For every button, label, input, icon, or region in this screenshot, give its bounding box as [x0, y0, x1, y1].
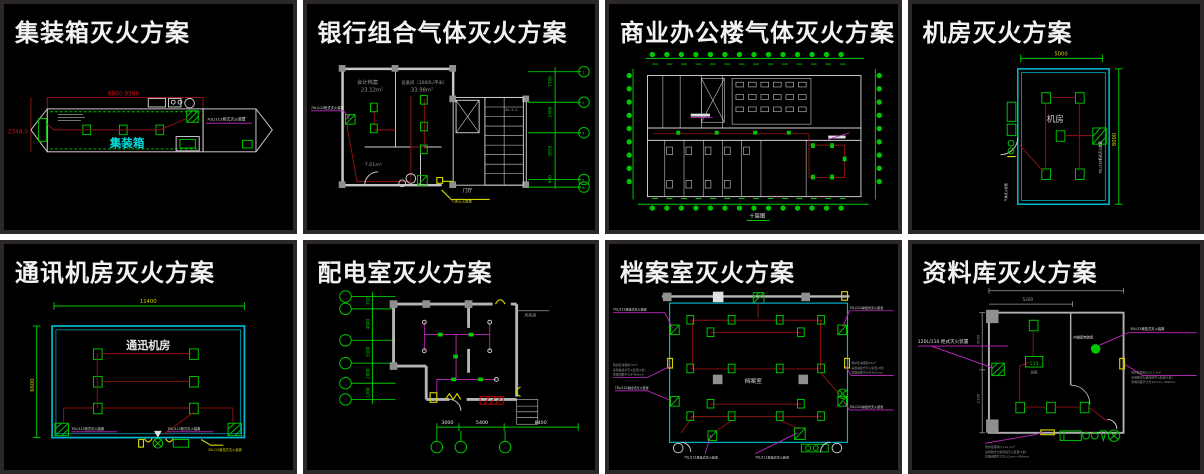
archive-note-6: 喷嘴间距不大于400mm — [851, 370, 882, 375]
power-dim-5: 2200 — [365, 387, 370, 398]
library-note-r3: 喷嘴间距尺寸为1/2mm~400mm — [1131, 379, 1175, 384]
panel-power[interactable]: 配电室灭火方案 310 4600 3100 2000 2200 — [303, 240, 600, 474]
panel-bank-title: 银行组合气体灭火方案 — [318, 13, 568, 48]
library-note-r2: 采用柜式七氟丙烷灭火装置(1套) — [1131, 374, 1172, 379]
nozzles — [676, 131, 846, 180]
power-bdim-3: 8400 — [534, 420, 546, 426]
label-highlights — [691, 114, 850, 140]
axis-dim-1: 7300 — [547, 76, 553, 87]
valve-sub-label: 阀组 — [1030, 370, 1037, 375]
valve-label: 115 — [1029, 361, 1038, 367]
cabinet-hatch — [991, 363, 1004, 375]
bank-device-label: 70L/112柜式灭火装置 — [310, 105, 344, 110]
dimension-lines — [1020, 55, 1122, 205]
panel-office-title: 商业办公楼气体灭火方案 — [620, 13, 895, 48]
dimension-lines — [33, 302, 245, 437]
power-dim-1: 310 — [365, 297, 370, 305]
fan-room-label: 风机房 — [524, 311, 536, 317]
archive-note-5: 采用悬挂式灭火装置(2套) — [851, 365, 884, 370]
axis-grid — [528, 66, 589, 192]
container-room-label: 集装箱 — [109, 136, 145, 150]
room3-area: 7.01m² — [364, 162, 381, 168]
archive-dev-label-1: 70L/112悬挂式灭火装置 — [613, 307, 647, 312]
library-device-right-label: 30L/13悬挂式灭火装置 — [1130, 326, 1165, 331]
panel-telecom-title: 通讯机房灭火方案 — [15, 253, 215, 288]
stair-label: BL-5-1 — [505, 107, 518, 112]
archive-note-2: 采用悬挂式灭火装置(2套) — [613, 367, 646, 372]
axis-id-2: 2 — [582, 100, 585, 105]
panel-machine-title: 机房灭火方案 — [923, 13, 1073, 48]
archive-note-3: 喷嘴间距不大于400mm — [613, 372, 644, 377]
telecom-dim-left: 6600 — [30, 378, 36, 391]
panel-archive-title: 档案室灭火方案 — [620, 253, 795, 288]
panel-bank[interactable]: 银行组合气体灭火方案 — [303, 0, 600, 234]
library-note-b2: 采用柜式七氟丙烷灭火装置(1套) — [985, 449, 1026, 454]
axis-dim-2: 2400 — [547, 106, 553, 117]
archive-dev-label-2: 70L/112悬挂式灭火装置 — [849, 305, 883, 310]
panel-archive[interactable]: 档案室灭火方案 — [605, 240, 902, 474]
magenta-piping — [422, 320, 498, 396]
red-piping — [681, 303, 840, 433]
archive-room-label: 档案室 — [745, 377, 763, 385]
container-dim-left: 2348.0 — [8, 130, 29, 136]
power-bdim-1: 3000 — [441, 420, 453, 426]
axis-dim-3: 3850 — [547, 145, 553, 156]
panel-telecom[interactable]: 通讯机房灭火方案 11400 6600 通迅机房 — [0, 240, 297, 474]
axis-id-3: 4 — [582, 131, 585, 136]
door-equipment — [1000, 102, 1017, 156]
panel-office[interactable]: 商业办公楼气体灭火方案 — [605, 0, 902, 234]
bottom-equipment — [1040, 419, 1119, 441]
cad-collage: 集装箱灭火方案 8860.9386 2348.0 — [0, 0, 1204, 474]
library-dim-top: 5200 — [1022, 297, 1033, 302]
red-piping — [1019, 331, 1107, 422]
library-device-left-label: 120L/110 柜式灭火装置 — [917, 338, 968, 345]
container-body — [31, 109, 272, 152]
library-note-b1: 防护区容积(V):12.1m³ — [985, 444, 1015, 449]
axis-id-1: 1 — [582, 70, 585, 75]
panel-container[interactable]: 集装箱灭火方案 8860.9386 2348.0 — [0, 0, 297, 234]
red-piping — [64, 354, 233, 435]
telecom-dim-top: 11400 — [140, 299, 157, 305]
room1-area: 23.12m² — [360, 88, 382, 94]
archive-dev-label-5: 70L/112悬挂式灭火装置 — [684, 455, 718, 460]
elevator — [456, 100, 479, 132]
note-leader — [201, 439, 223, 445]
device-right-leader — [1099, 333, 1196, 345]
power-dim-4: 2000 — [365, 368, 370, 379]
telecom-room-label: 通迅机房 — [126, 338, 170, 352]
panel-library-title: 资料库灭火方案 — [923, 253, 1098, 288]
room-walls — [1017, 69, 1108, 204]
power-dim-2: 4600 — [365, 319, 370, 330]
cabinet-hatch — [345, 115, 427, 186]
telecom-note: 30L/13悬挂式灭火装置 — [208, 447, 243, 452]
circle-label: 内部配电装置 — [1073, 334, 1093, 339]
room2-area: 33.98m² — [410, 88, 432, 94]
telecom-device-left: 70L/112柜式灭火装置 — [71, 426, 105, 431]
lobby-label: 门厅 — [462, 187, 472, 194]
door-arcs — [449, 300, 520, 411]
machine-room-label: 机房 — [1046, 113, 1063, 125]
bottom-dimensions — [431, 423, 578, 453]
library-dim-left-2: 2100 — [975, 393, 980, 403]
nozzles — [370, 96, 427, 154]
roof-equipment — [148, 98, 194, 108]
top-wall — [662, 292, 850, 303]
dimension-lines — [979, 288, 1123, 433]
power-bdim-2: 5400 — [475, 420, 487, 426]
panel-machine[interactable]: 机房灭火方案 5000 8000 — [908, 0, 1204, 234]
panel-container-title: 集装箱灭火方案 — [15, 13, 190, 48]
office-caption: 十层图 — [749, 212, 765, 220]
library-note-r1: 防护区容积(V):12.1m³ — [1131, 370, 1161, 375]
container-dim-top: 8860.9386 — [108, 92, 139, 98]
device-left-leader — [917, 346, 1007, 368]
axis-dim-4: 600 — [547, 175, 553, 183]
microtext-note — [58, 115, 85, 121]
columns — [389, 300, 472, 370]
suspended-extinguisher — [1090, 344, 1100, 354]
room2-name: 设备间（3000L/平米） — [401, 79, 447, 86]
room1-name: 会计档案 — [357, 78, 379, 86]
panel-library[interactable]: 资料库灭火方案 5200 3000 2100 120L/110 柜式灭火装置 — [908, 240, 1204, 474]
panel-power-title: 配电室灭火方案 — [318, 253, 493, 288]
archive-note-1: 防护区净容积72m³ — [613, 362, 638, 367]
axis-id-5: 6 — [582, 185, 585, 190]
telecom-device-right: 70L/112柜式灭火装置 — [167, 426, 201, 431]
walls — [393, 304, 549, 399]
archive-dev-label-4: 70L/112悬挂式灭火装置 — [849, 404, 883, 409]
archive-dev-label-3: 70L/112悬挂式灭火装置 — [615, 385, 649, 390]
agent-cabinet-hatch — [187, 111, 199, 122]
library-note-b3: 喷嘴间距尺寸为1/2mm~400mm — [985, 454, 1029, 459]
room-walls — [986, 310, 1124, 433]
archive-dev-label-6: 70L/112悬挂式灭火装置 — [755, 455, 789, 460]
container-device-label: 70L/112柜式灭火装置 — [207, 116, 246, 121]
archive-note-4: 防护区净容积72m³ — [851, 360, 876, 365]
machine-device-label: 70L/112柜式灭火装置 — [1097, 140, 1102, 173]
red-piping — [347, 96, 424, 182]
machine-dim-top: 5000 — [1054, 52, 1067, 58]
power-dim-3: 3100 — [365, 346, 370, 357]
bottom-equipment — [430, 393, 538, 424]
machine-dim-right: 8000 — [1111, 133, 1117, 146]
nozzles — [437, 333, 482, 382]
workstations — [667, 82, 806, 188]
library-dim-left-1: 3000 — [975, 334, 980, 344]
machine-note: 气体灭火装置 — [1003, 183, 1008, 201]
